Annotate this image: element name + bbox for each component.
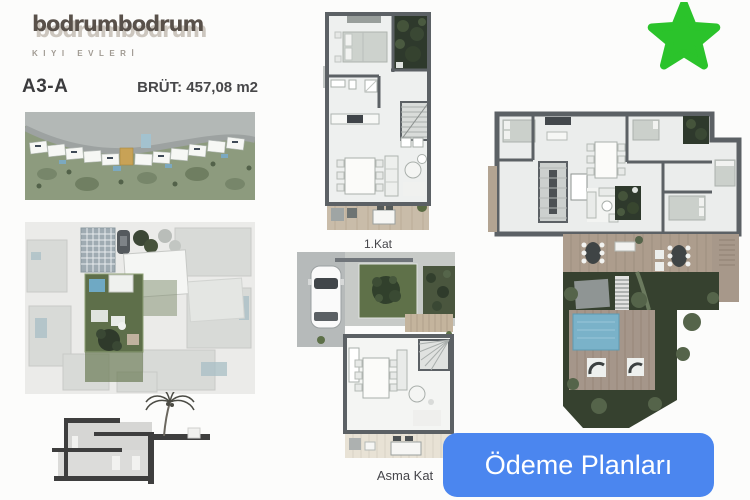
unit-code: A3-A: [22, 76, 68, 98]
floor-plan-garden-level: [487, 104, 745, 430]
dining-set: [587, 142, 625, 178]
lower-deck: [345, 434, 452, 458]
site-plan-thumbnail: [25, 112, 255, 200]
pool: [573, 314, 619, 350]
unit-gross-area: BRÜT: 457,08 m2: [137, 79, 258, 96]
palm-tree: [146, 392, 200, 438]
section-drawing: [52, 392, 232, 492]
floor-plan-first-floor: [323, 10, 433, 238]
terrace-deck: [327, 202, 429, 230]
garden-planting: [423, 266, 455, 318]
first-floor-label: 1.Kat: [328, 237, 428, 251]
adjacent-roof: [188, 278, 245, 322]
stairs: [401, 102, 429, 140]
stairs: [419, 340, 449, 370]
site-highlighted-unit: [120, 148, 133, 165]
cabinet: [397, 350, 407, 390]
upper-deck: [563, 234, 712, 272]
deck-steps: [405, 314, 453, 332]
dining-set: [337, 158, 383, 194]
garden-lawn: [359, 264, 417, 318]
brand-wordmark: bodrumbodrum bodrumbodrum: [32, 12, 252, 46]
upper-courtyard: [683, 116, 709, 144]
unit-pool: [89, 279, 105, 292]
solar-panels: [81, 228, 115, 272]
living-area: [587, 188, 618, 222]
floor-plan-mezzanine: [297, 252, 455, 460]
brand-tagline: KIYI EVLERİ: [32, 49, 252, 58]
favorite-star-icon[interactable]: [646, 2, 722, 78]
listing-detail-screen: bodrumbodrum bodrumbodrum KIYI EVLERİ A3…: [0, 0, 750, 500]
brand-logo: bodrumbodrum bodrumbodrum KIYI EVLERİ: [32, 12, 252, 58]
payment-plans-button[interactable]: Ödeme Planları: [443, 433, 714, 497]
parked-car: [308, 266, 344, 328]
kitchen: [331, 114, 379, 124]
unit-header: A3-A BRÜT: 457,08 m2: [22, 76, 258, 98]
garden: [563, 272, 719, 428]
roof-plan-thumbnail: [25, 222, 255, 394]
center-courtyard: [615, 186, 641, 220]
brand-wordmark-text: bodrumbodrum: [32, 12, 203, 36]
driveway-car: [117, 230, 130, 254]
side-balcony: [488, 166, 497, 232]
courtyard-garden: [393, 16, 429, 70]
